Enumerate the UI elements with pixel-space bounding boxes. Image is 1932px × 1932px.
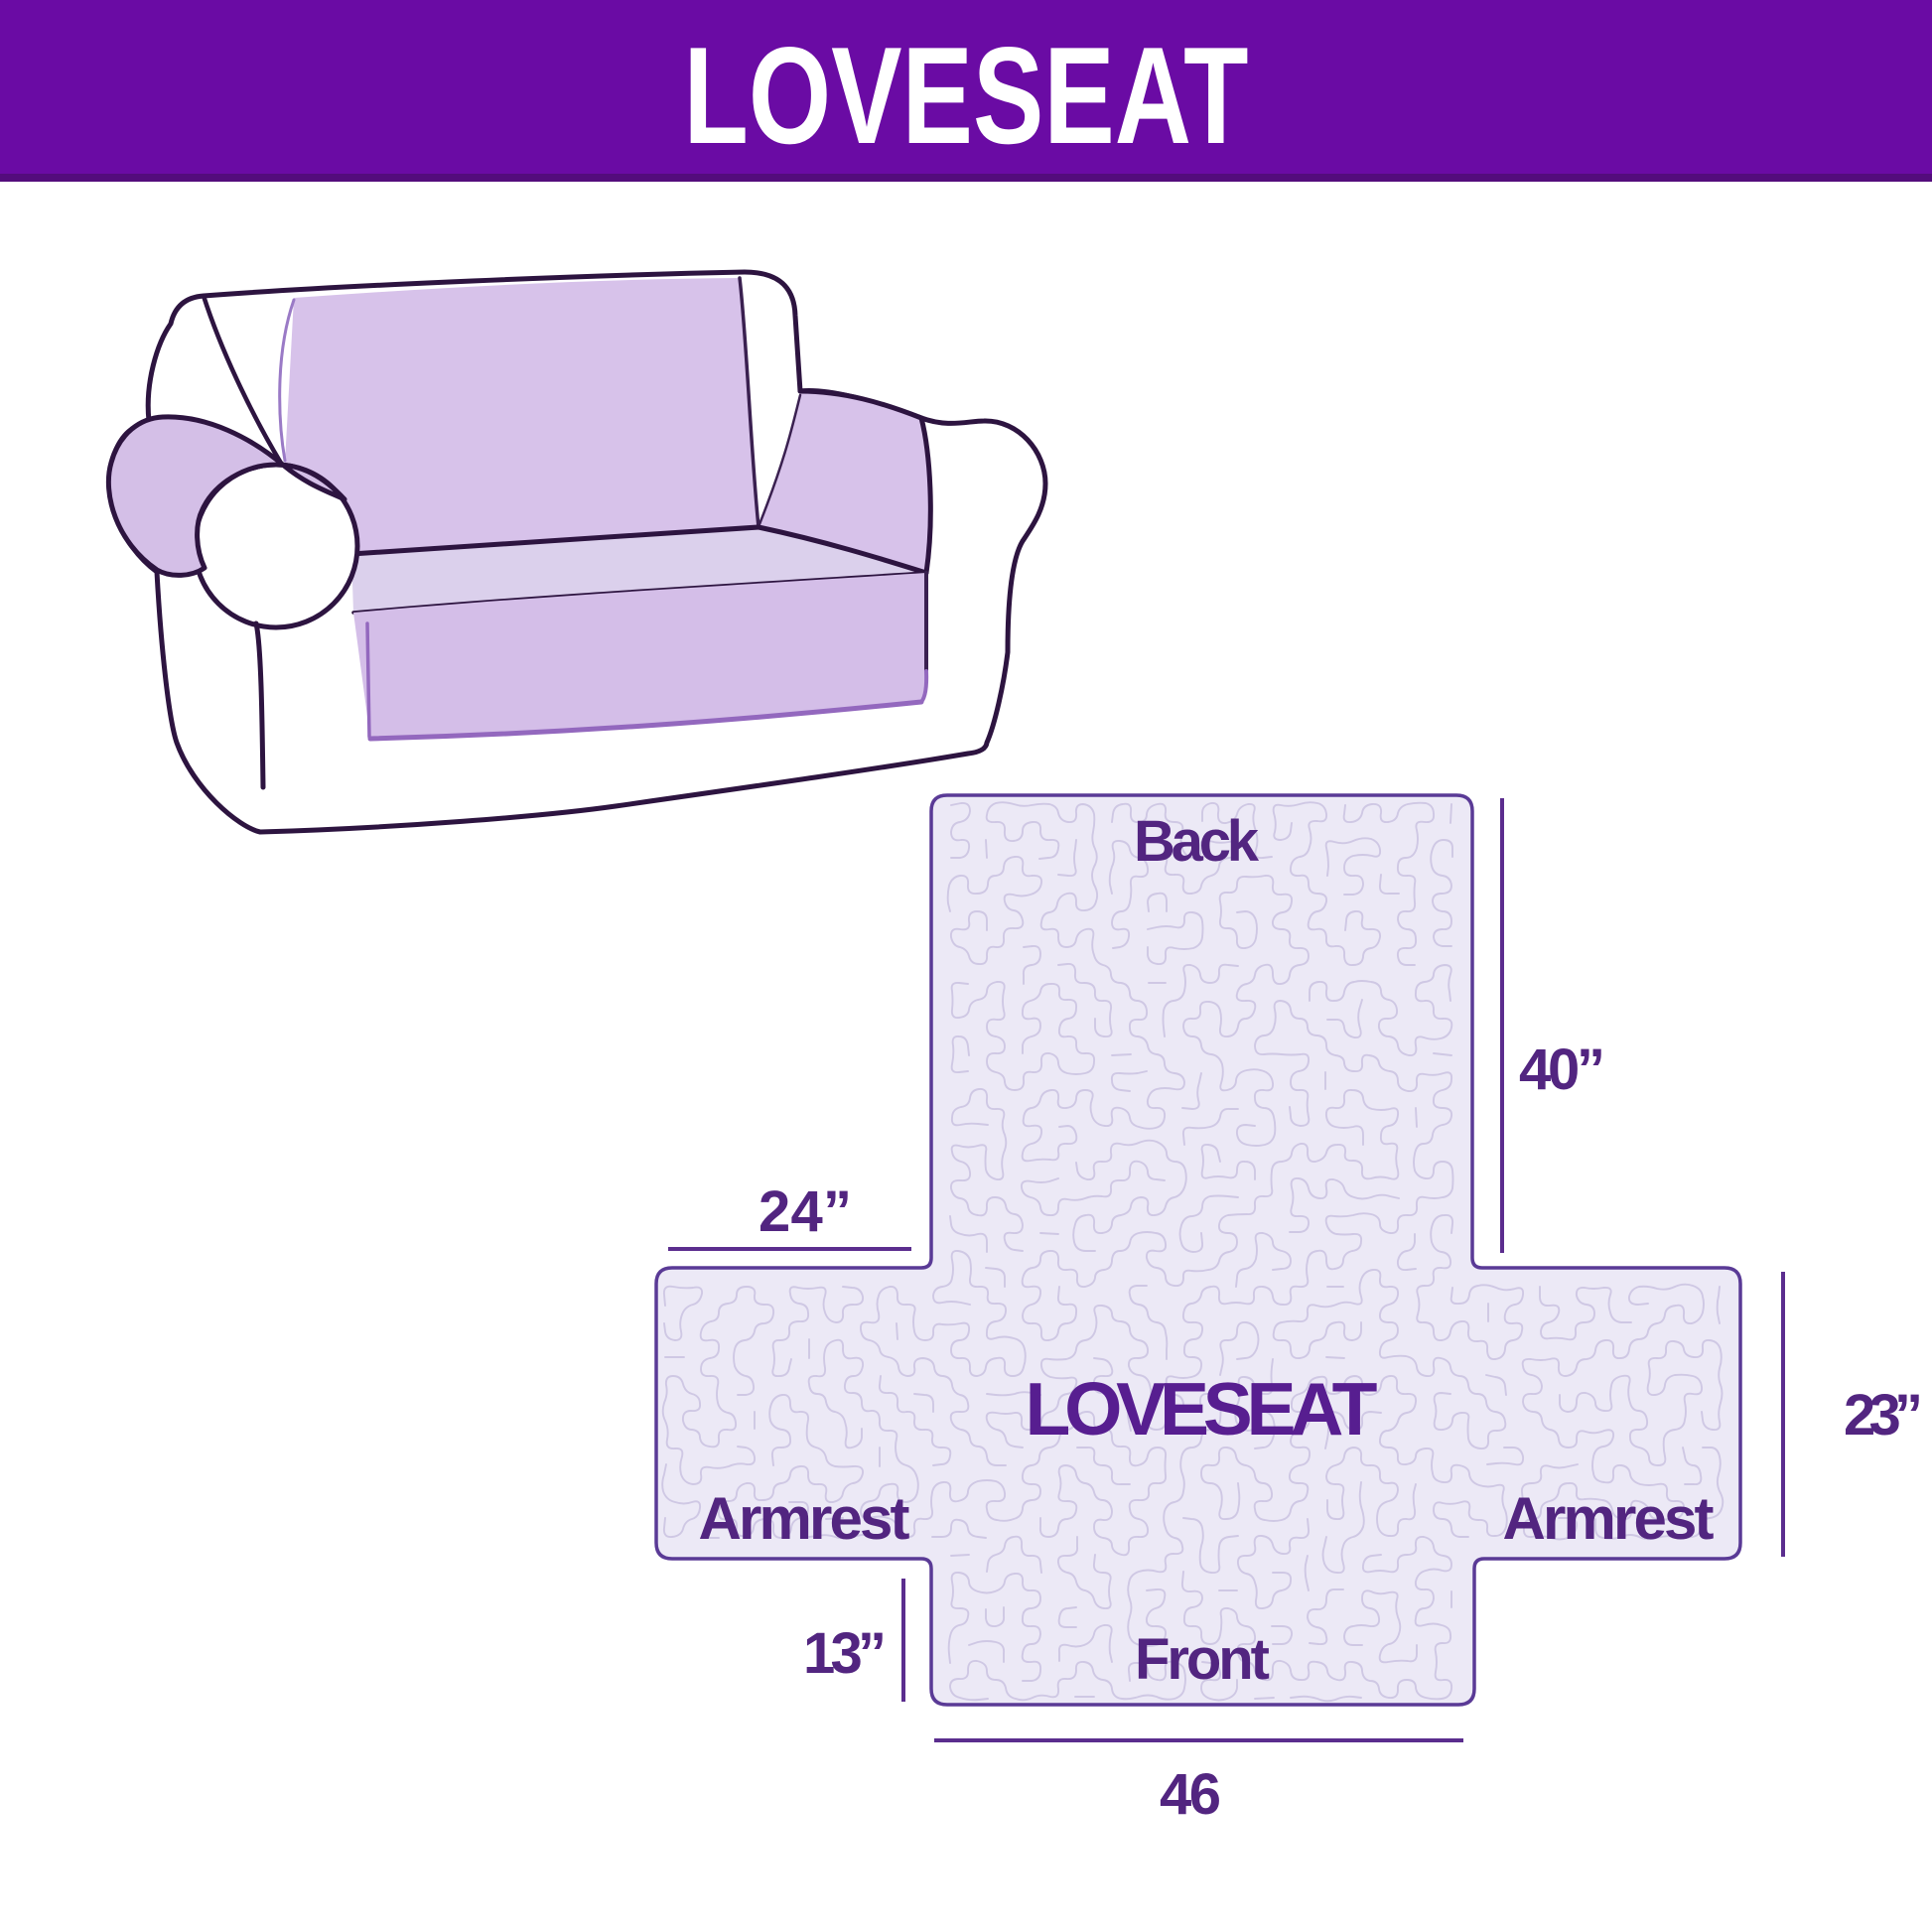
svg-text:23”: 23” xyxy=(1844,1383,1923,1448)
svg-text:Front: Front xyxy=(1135,1627,1270,1692)
svg-text:46: 46 xyxy=(1160,1762,1221,1827)
svg-text:Armrest: Armrest xyxy=(1503,1485,1715,1552)
svg-text:LOVESEAT: LOVESEAT xyxy=(1026,1367,1378,1450)
svg-text:13”: 13” xyxy=(803,1621,887,1686)
svg-text:Armrest: Armrest xyxy=(699,1485,910,1552)
svg-text:Back: Back xyxy=(1134,809,1260,874)
svg-text:LOVESEAT: LOVESEAT xyxy=(684,19,1249,173)
svg-text:40”: 40” xyxy=(1519,1037,1605,1102)
svg-text:24”: 24” xyxy=(759,1179,852,1244)
